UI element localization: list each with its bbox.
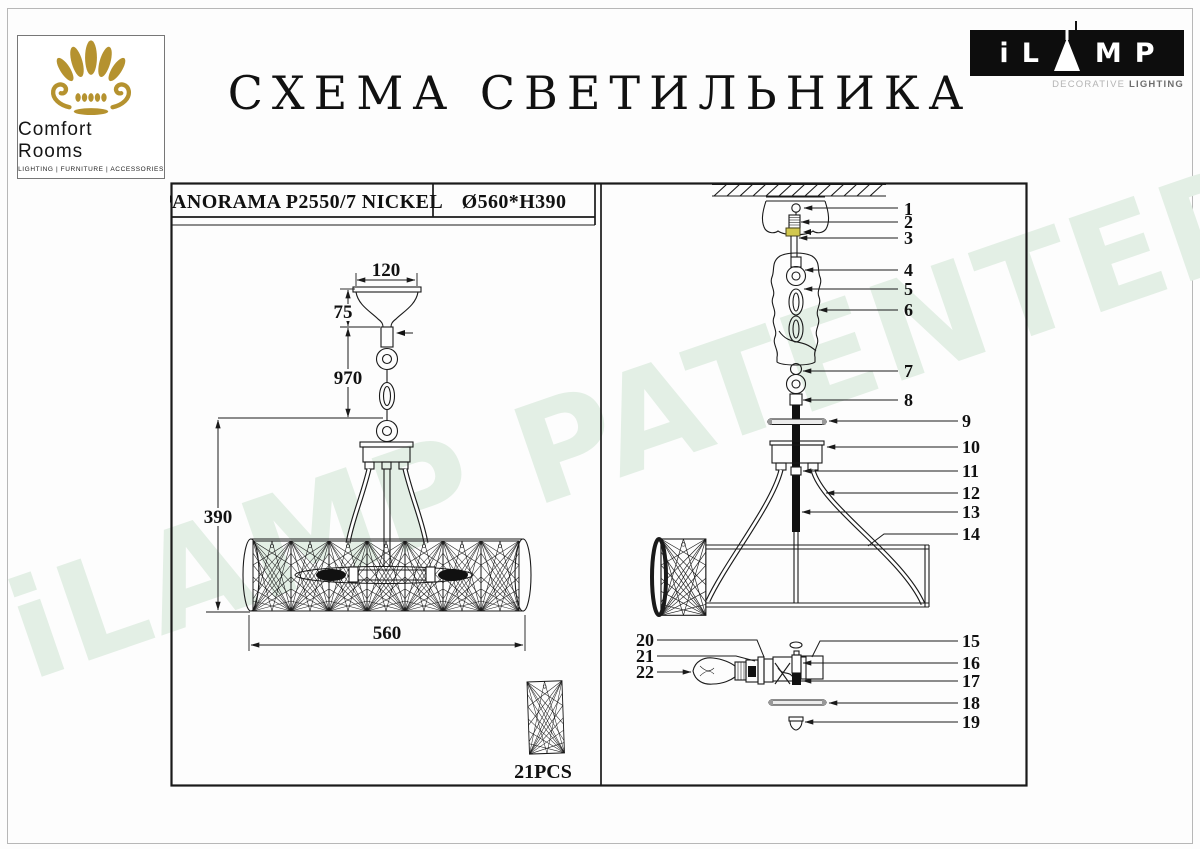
chain bbox=[377, 349, 398, 442]
callout-6: 6 bbox=[904, 300, 913, 320]
callout-9: 9 bbox=[962, 411, 971, 431]
callout-10: 10 bbox=[962, 437, 980, 457]
pendant-lamp-icon bbox=[1052, 30, 1082, 76]
callout-15: 15 bbox=[962, 631, 980, 651]
callout-22: 22 bbox=[636, 662, 654, 682]
spec-model: PANORAMA P2550/7 NICKEL bbox=[170, 191, 443, 213]
ilamp-letter-l: L bbox=[1022, 40, 1039, 67]
lamp-holder-assembly bbox=[693, 642, 826, 730]
crystal-piece: 21PCS bbox=[514, 681, 572, 783]
callout-12: 12 bbox=[962, 483, 980, 503]
callout-4: 4 bbox=[904, 260, 913, 280]
canopy bbox=[353, 287, 421, 347]
right-exploded-drawing: 1 2 3 4 5 6 7 8 9 10 11 12 13 14 15 16 1… bbox=[636, 184, 980, 732]
callout-5: 5 bbox=[904, 279, 913, 299]
threaded-screw bbox=[789, 215, 800, 228]
end-cap bbox=[789, 717, 803, 730]
black-plug bbox=[792, 673, 801, 685]
exploded-drum-frame bbox=[652, 539, 929, 615]
callout-8: 8 bbox=[904, 390, 913, 410]
hook bbox=[792, 204, 800, 212]
ilamp-logo: i L M P bbox=[970, 30, 1184, 76]
ilamp-letter-p: P bbox=[1135, 40, 1155, 67]
callout-14: 14 bbox=[962, 524, 980, 544]
exploded-canopy bbox=[762, 197, 828, 257]
ceiling-hatch bbox=[712, 184, 886, 196]
central-rod bbox=[768, 405, 826, 603]
ilamp-subtitle-light: DECORATIVE bbox=[1052, 79, 1129, 90]
dim-canopy-width: 120 bbox=[372, 260, 401, 281]
locking-nut bbox=[786, 228, 800, 236]
callout-13: 13 bbox=[962, 502, 980, 522]
cover-disc bbox=[768, 419, 826, 425]
bulb-right bbox=[438, 569, 468, 581]
comfort-rooms-tagline: LIGHTING | FURNITURE | ACCESSORIES bbox=[18, 166, 164, 173]
ilamp-letter-i: i bbox=[999, 40, 1008, 67]
cable-cover-and-chain bbox=[771, 253, 821, 405]
main-frame bbox=[171, 183, 1027, 786]
bottom-rod bbox=[769, 700, 826, 705]
bulb-left bbox=[316, 569, 346, 581]
dim-body-diameter: 560 bbox=[373, 623, 402, 644]
dim-canopy-height: 75 bbox=[334, 302, 353, 323]
callout-7: 7 bbox=[904, 361, 913, 381]
ilamp-subtitle-bold: LIGHTING bbox=[1129, 79, 1184, 90]
crystal-count-label: 21PCS bbox=[514, 761, 572, 783]
comfort-rooms-name: Comfort Rooms bbox=[18, 119, 164, 163]
spec-header: PANORAMA P2550/7 NICKEL Ø560*H390 bbox=[170, 191, 566, 213]
dim-body-height: 390 bbox=[204, 507, 233, 528]
ilamp-subtitle: DECORATIVE LIGHTING bbox=[970, 79, 1184, 90]
contact-pin bbox=[792, 655, 801, 673]
schematic-drawing: PANORAMA P2550/7 NICKEL Ø560*H390 bbox=[170, 182, 1029, 787]
callout-16: 16 bbox=[962, 653, 980, 673]
exploded-hub-and-arms bbox=[708, 441, 923, 604]
callout-17: 17 bbox=[962, 671, 980, 691]
spec-dimensions: Ø560*H390 bbox=[462, 191, 567, 213]
crystal-drum-shade bbox=[243, 539, 531, 611]
schematic-page: iLAMP PATENTED Comfort Rooms L bbox=[0, 0, 1200, 849]
ilamp-letter-m: M bbox=[1095, 40, 1122, 67]
callout-3: 3 bbox=[904, 228, 913, 248]
callout-11: 11 bbox=[962, 461, 979, 481]
ilamp-cord-stub bbox=[1075, 21, 1077, 30]
callout-19: 19 bbox=[962, 712, 980, 732]
candle-bulb bbox=[693, 658, 735, 684]
callout-18: 18 bbox=[962, 693, 980, 713]
dim-suspension-length: 970 bbox=[334, 368, 363, 389]
left-projection-drawing: 120 75 970 390 560 21PCS bbox=[198, 260, 572, 783]
